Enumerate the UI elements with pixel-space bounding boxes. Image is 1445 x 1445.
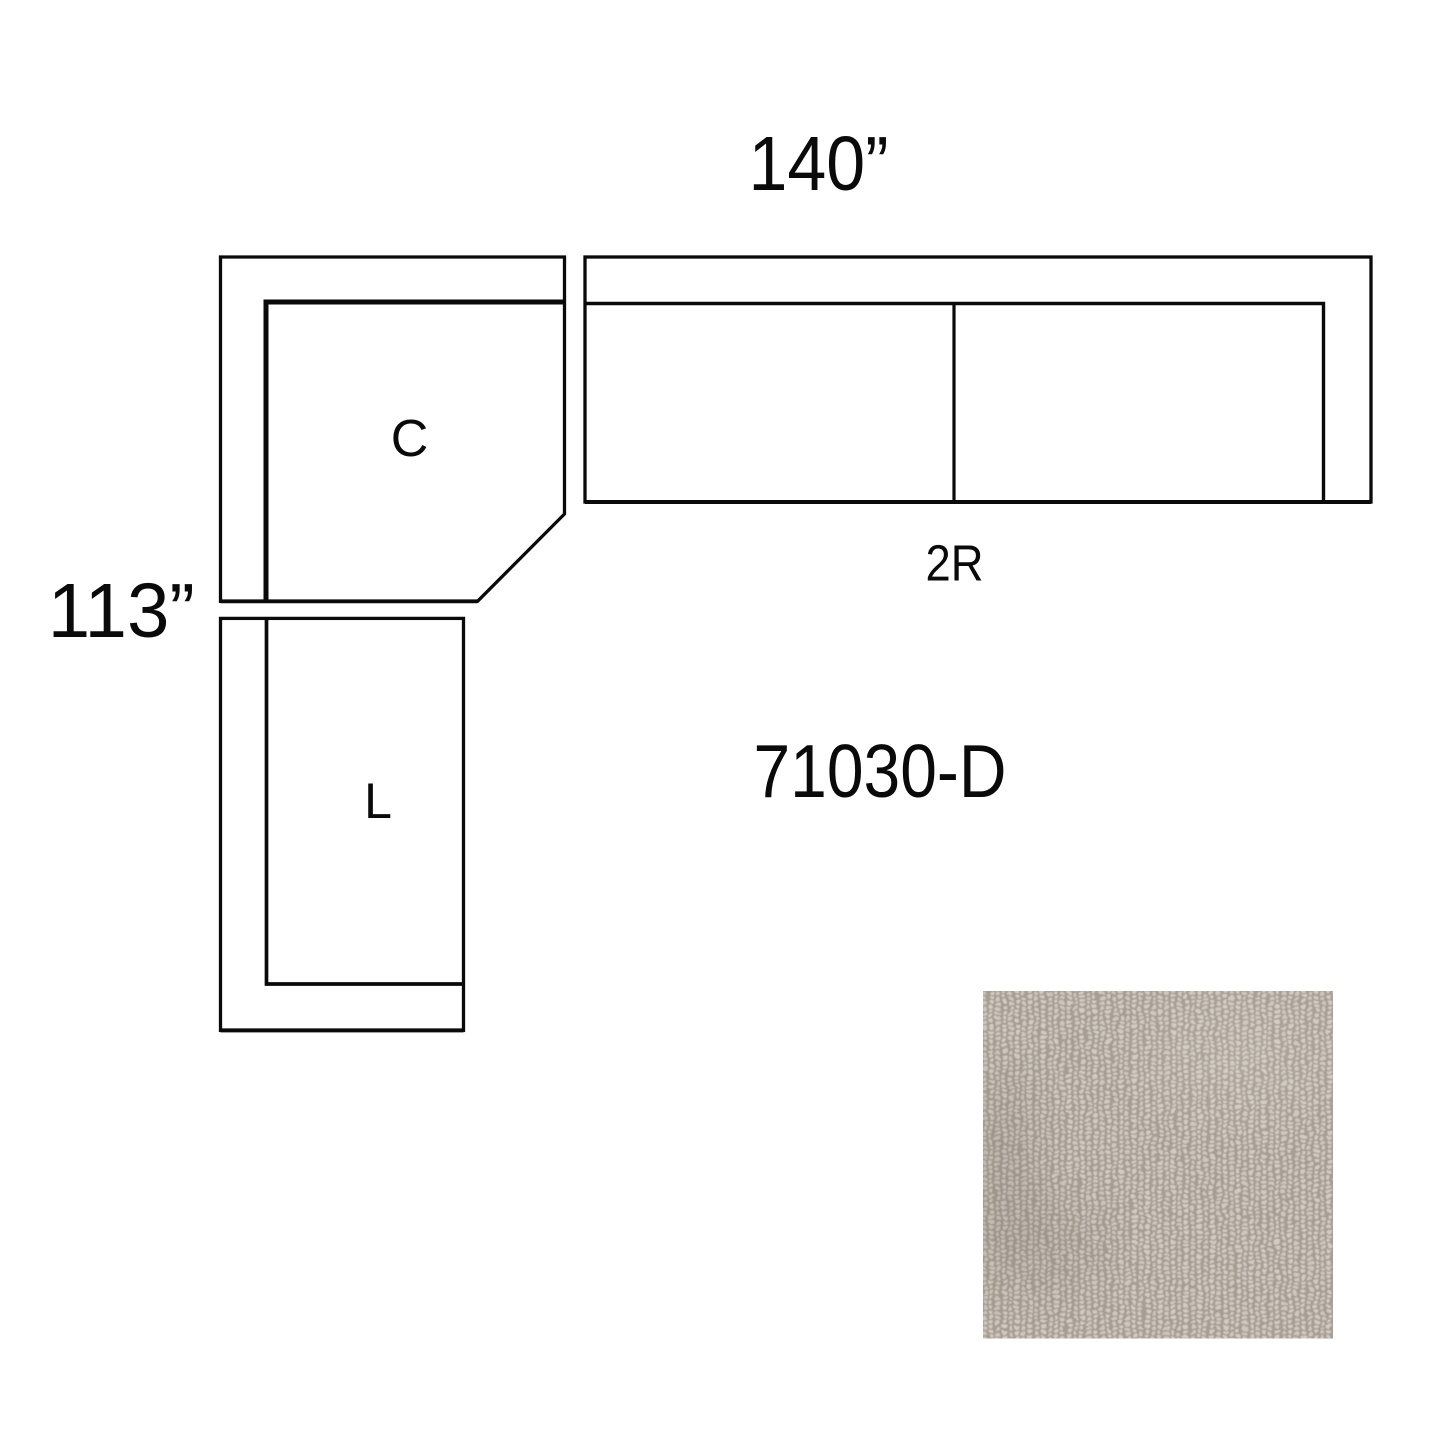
svg-text:140”: 140”	[749, 121, 889, 207]
svg-text:113”: 113”	[48, 568, 195, 654]
svg-text:2R: 2R	[926, 535, 984, 592]
svg-text:71030-D: 71030-D	[754, 729, 1007, 813]
svg-text:L: L	[364, 773, 392, 829]
svg-text:C: C	[391, 410, 429, 468]
